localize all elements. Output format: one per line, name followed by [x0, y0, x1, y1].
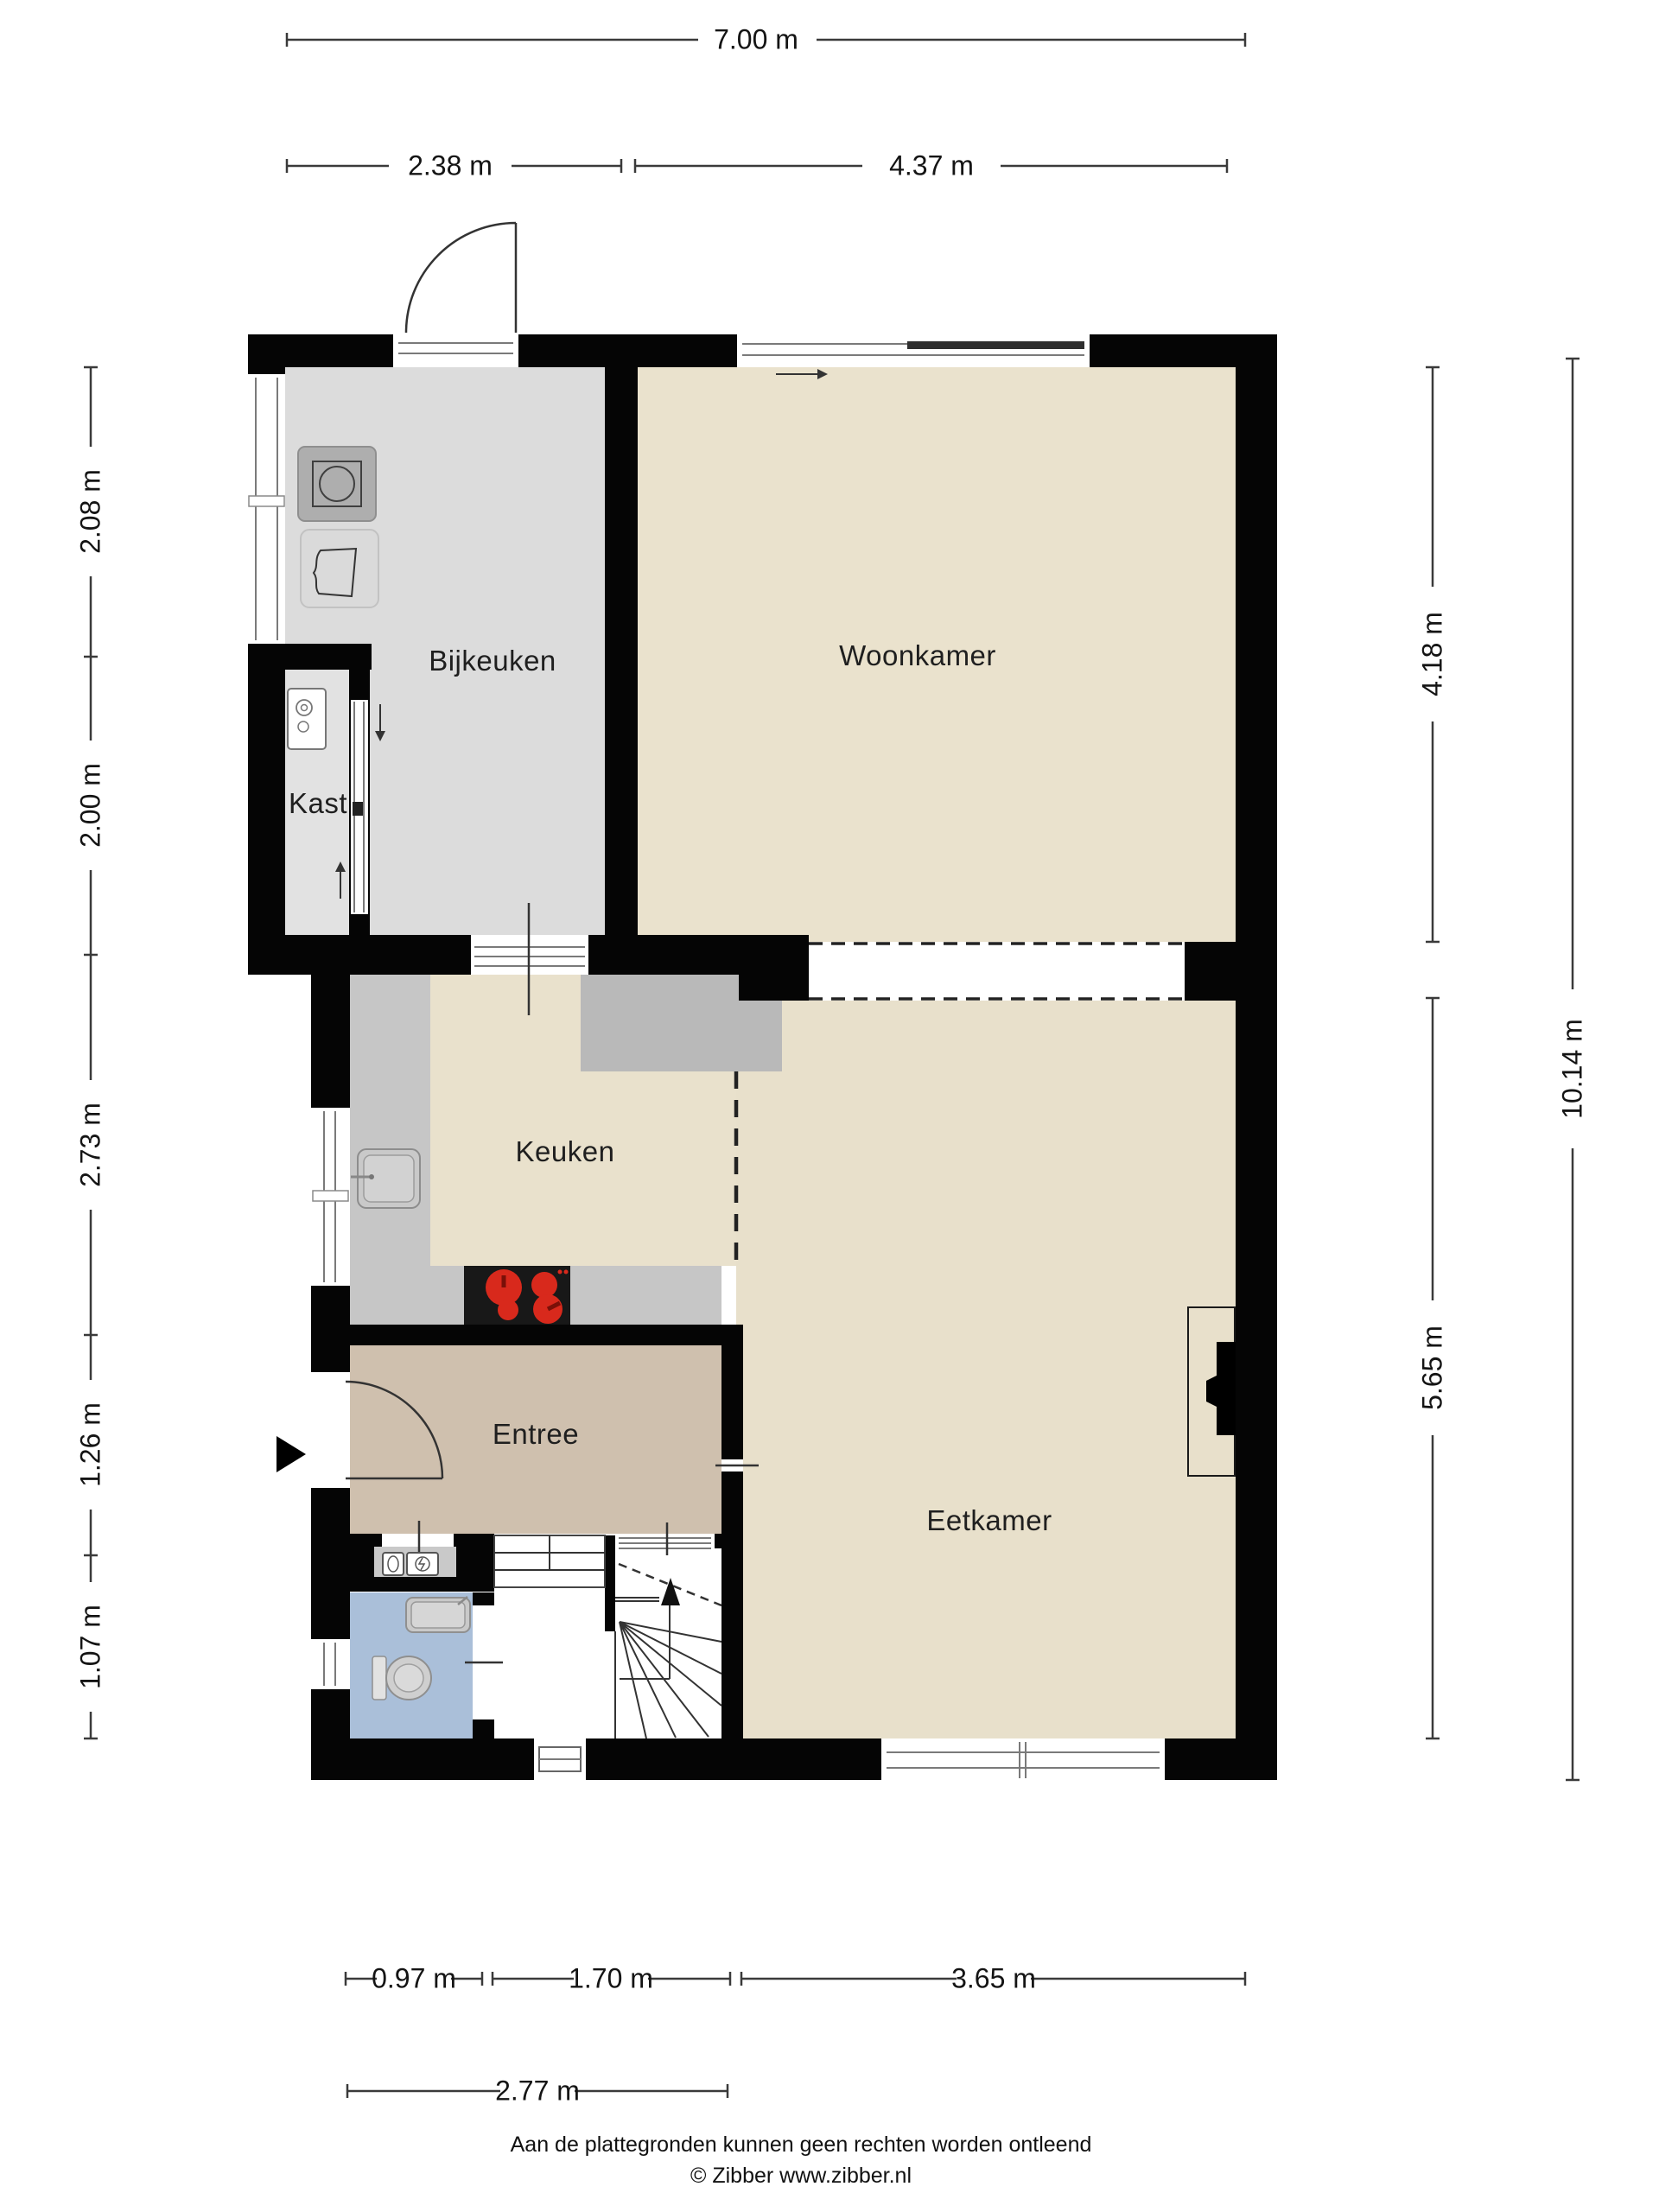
chimney-recess [1187, 1306, 1236, 1477]
dim-left-1: 2.08 m [75, 469, 107, 554]
sliding-door-opening [471, 935, 588, 975]
meterkast-opening [382, 1534, 454, 1547]
vent-window [534, 1738, 586, 1780]
wall-passage-stub-left [739, 942, 809, 1001]
wall-bijkeuken-woonkamer [605, 367, 638, 942]
keuken-counter-bottom [350, 1266, 721, 1325]
room-label-keuken: Keuken [516, 1135, 615, 1168]
bathroom-floor [350, 1592, 473, 1738]
dim-left-2: 2.00 m [75, 763, 107, 848]
dim-right-outer: 10.14 m [1557, 1019, 1589, 1119]
wall-stair-stub-east [715, 1534, 721, 1548]
woonkamer-window [737, 334, 1090, 367]
wall-right [1236, 334, 1277, 1780]
eetkamer-window [881, 1738, 1165, 1780]
dim-bottom-3: 3.65 m [951, 1963, 1036, 1995]
wall-kast-top [248, 644, 372, 670]
room-label-kast: Kast [289, 787, 347, 820]
wall-keuken-bottom [350, 1325, 721, 1345]
keuken-window [311, 1108, 350, 1286]
dim-top-right: 4.37 m [889, 150, 974, 182]
room-label-woonkamer: Woonkamer [839, 639, 996, 672]
keuken-counter-left [350, 975, 430, 1266]
meterkast-box [374, 1547, 456, 1577]
kast-sliding-track [351, 700, 368, 914]
footer-disclaimer: Aan de plattegronden kunnen geen rechten… [511, 2133, 1092, 2158]
dim-left-5: 1.07 m [75, 1605, 107, 1689]
room-label-bijkeuken: Bijkeuken [429, 645, 556, 677]
entree-eetkamer-opening [721, 1459, 743, 1471]
eetkamer-floor [736, 1001, 1236, 1738]
front-door-opening [311, 1372, 350, 1488]
back-door-icon [406, 223, 516, 333]
dim-top-left: 2.38 m [408, 150, 493, 182]
wall-east-hall [721, 1325, 743, 1738]
footer-credit: © Zibber www.zibber.nl [690, 2164, 912, 2189]
room-label-eetkamer: Eetkamer [926, 1504, 1052, 1537]
floorplan-page: Bijkeuken Woonkamer Kast Keuken Entree E… [0, 0, 1659, 2212]
dim-left-4: 1.26 m [75, 1402, 107, 1487]
bathroom-window [311, 1639, 350, 1689]
room-label-entree: Entree [493, 1418, 579, 1451]
entrance-arrow-icon [276, 1436, 306, 1472]
dim-left-3: 2.73 m [75, 1103, 107, 1187]
dim-bottom-1: 0.97 m [372, 1963, 456, 1995]
wall-stair-stub [605, 1535, 615, 1631]
dim-bottom-2: 1.70 m [569, 1963, 653, 1995]
stair-entry-opening [615, 1535, 715, 1548]
dim-right-inner-2: 5.65 m [1417, 1325, 1449, 1410]
back-door-opening [393, 334, 518, 367]
bijkeuken-window [248, 374, 285, 644]
dim-bottom-second: 2.77 m [495, 2075, 580, 2107]
dim-right-inner-1: 4.18 m [1417, 612, 1449, 696]
wall-passage-stub-right [1185, 942, 1236, 1001]
bathroom-door-opening [473, 1605, 494, 1719]
dim-top-total: 7.00 m [714, 24, 798, 56]
